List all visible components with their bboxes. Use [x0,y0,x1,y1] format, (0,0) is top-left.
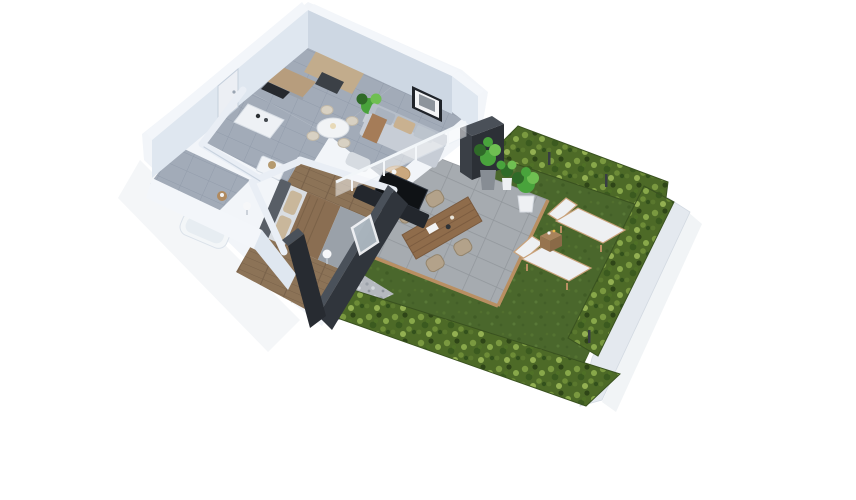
bath-towel [220,193,224,197]
render-canvas [0,0,856,500]
pot-foliage [521,167,531,177]
fence-post [548,152,551,165]
dining-chair [307,132,319,141]
fiddle-foliage [483,137,493,147]
drink-glass [547,231,550,234]
plant-foliage [371,94,382,105]
small-pot-foliage [508,161,517,170]
small-pot [502,178,512,190]
dining-chair [321,106,333,115]
basket [268,161,276,169]
small-pot-foliage [497,161,506,170]
fiddle-plant-pot [480,170,496,190]
plant-foliage [357,94,368,105]
drink-glass [553,230,556,233]
door-handle [232,90,235,93]
fence-post [605,174,608,187]
pot-white [518,196,534,212]
island-decor [256,114,260,118]
bedside-lamp [243,202,251,210]
floorplan-render [0,0,856,500]
bedside-lamp [323,250,332,259]
fence-post [588,330,591,343]
table-flowers [330,123,336,129]
fiddle-foliage [474,144,486,156]
dining-chair [338,139,350,148]
island-decor [264,118,268,122]
